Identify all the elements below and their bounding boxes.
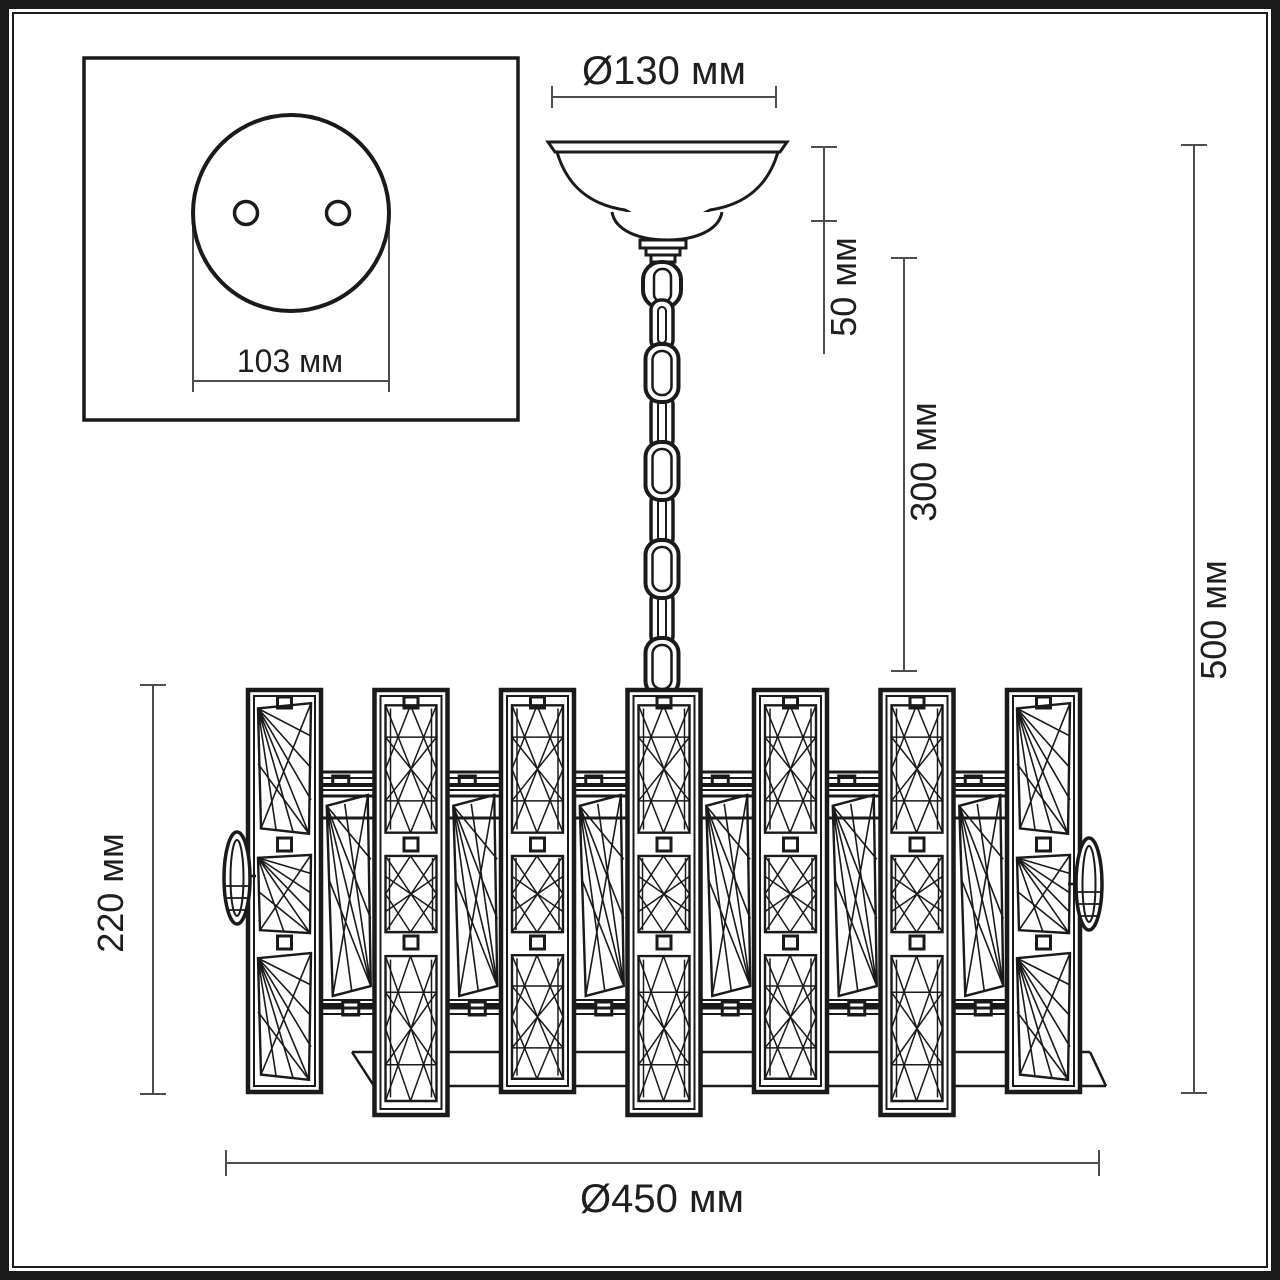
crystal-column bbox=[881, 690, 954, 1115]
chandelier-body bbox=[224, 690, 1106, 1115]
back-panel bbox=[694, 776, 760, 1015]
crystal-column bbox=[1007, 690, 1080, 1092]
crystal-column bbox=[248, 690, 321, 1092]
crystal-columns bbox=[248, 690, 1080, 1115]
crystal-column-center bbox=[628, 690, 701, 1115]
dim-total-height: 500 мм bbox=[1181, 145, 1234, 1093]
ceiling-canopy bbox=[548, 142, 787, 308]
mounting-plate-circle bbox=[193, 115, 389, 311]
label-body-diameter: Ø450 мм bbox=[580, 1177, 744, 1221]
crystal-column bbox=[754, 690, 827, 1092]
label-total-height: 500 мм bbox=[1193, 560, 1234, 680]
label-chain-length: 300 мм bbox=[903, 402, 944, 522]
label-body-height: 220 мм bbox=[90, 833, 131, 953]
back-panel bbox=[315, 776, 381, 1015]
suspension-chain bbox=[646, 300, 679, 696]
back-panel bbox=[441, 776, 507, 1015]
back-panel bbox=[821, 776, 887, 1015]
canopy-cup bbox=[612, 212, 722, 240]
dim-canopy-diameter: Ø130 мм bbox=[552, 49, 776, 108]
crystal-column bbox=[501, 690, 574, 1092]
dim-body-diameter: Ø450 мм bbox=[226, 1150, 1099, 1221]
technical-drawing-page: 103 мм bbox=[0, 0, 1280, 1280]
mounting-plate-inset: 103 мм bbox=[84, 58, 518, 420]
bottom-plate bbox=[352, 1052, 1106, 1086]
canopy-bell bbox=[557, 152, 778, 222]
mounting-hole-right bbox=[327, 202, 350, 225]
chandelier-dimension-diagram: 103 мм bbox=[0, 0, 1280, 1280]
dim-body-height: 220 мм bbox=[90, 685, 166, 1094]
label-canopy-diameter: Ø130 мм bbox=[582, 49, 746, 93]
dim-canopy-height: 50 мм bbox=[811, 147, 864, 354]
canopy-plate bbox=[548, 142, 787, 152]
label-canopy-height: 50 мм bbox=[823, 237, 864, 337]
back-panel bbox=[947, 776, 1013, 1015]
crystal-column bbox=[375, 690, 448, 1115]
mounting-hole-left bbox=[235, 202, 258, 225]
dim-chain-length: 300 мм bbox=[891, 258, 944, 671]
label-mount-hole-spacing: 103 мм bbox=[237, 343, 343, 379]
back-panel bbox=[568, 776, 634, 1015]
